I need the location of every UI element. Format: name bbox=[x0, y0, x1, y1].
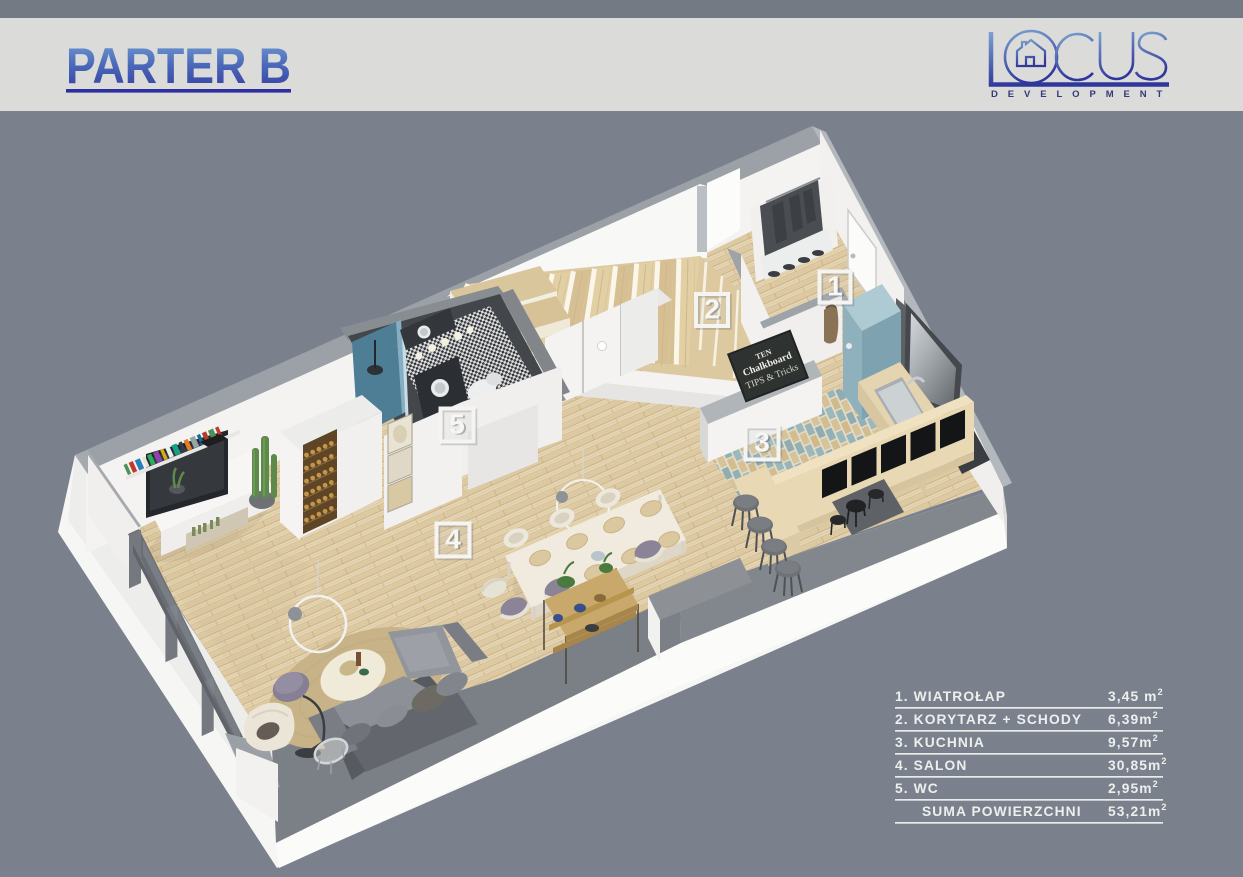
svg-text:5. WC: 5. WC bbox=[895, 781, 939, 796]
svg-text:3. KUCHNIA: 3. KUCHNIA bbox=[895, 735, 985, 750]
svg-text:1. WIATROŁAP: 1. WIATROŁAP bbox=[895, 689, 1006, 704]
svg-text:2,95m2: 2,95m2 bbox=[1108, 779, 1159, 796]
svg-text:1: 1 bbox=[827, 271, 843, 302]
svg-text:30,85m2: 30,85m2 bbox=[1108, 756, 1168, 773]
svg-text:9,57m2: 9,57m2 bbox=[1108, 733, 1159, 750]
svg-text:3: 3 bbox=[754, 427, 770, 458]
svg-text:4: 4 bbox=[445, 524, 461, 555]
svg-text:SUMA POWIERZCHNI: SUMA POWIERZCHNI bbox=[922, 804, 1082, 819]
svg-text:53,21m2: 53,21m2 bbox=[1108, 802, 1168, 819]
svg-text:5: 5 bbox=[449, 409, 465, 440]
svg-text:2. KORYTARZ + SCHODY: 2. KORYTARZ + SCHODY bbox=[895, 712, 1082, 727]
svg-text:3,45 m2: 3,45 m2 bbox=[1108, 687, 1164, 704]
svg-text:4. SALON: 4. SALON bbox=[895, 758, 967, 773]
svg-text:6,39m2: 6,39m2 bbox=[1108, 710, 1159, 727]
svg-text:DEVELOPMENT: DEVELOPMENT bbox=[991, 89, 1172, 100]
svg-text:PARTER B: PARTER B bbox=[66, 38, 291, 94]
svg-text:2: 2 bbox=[704, 294, 720, 325]
